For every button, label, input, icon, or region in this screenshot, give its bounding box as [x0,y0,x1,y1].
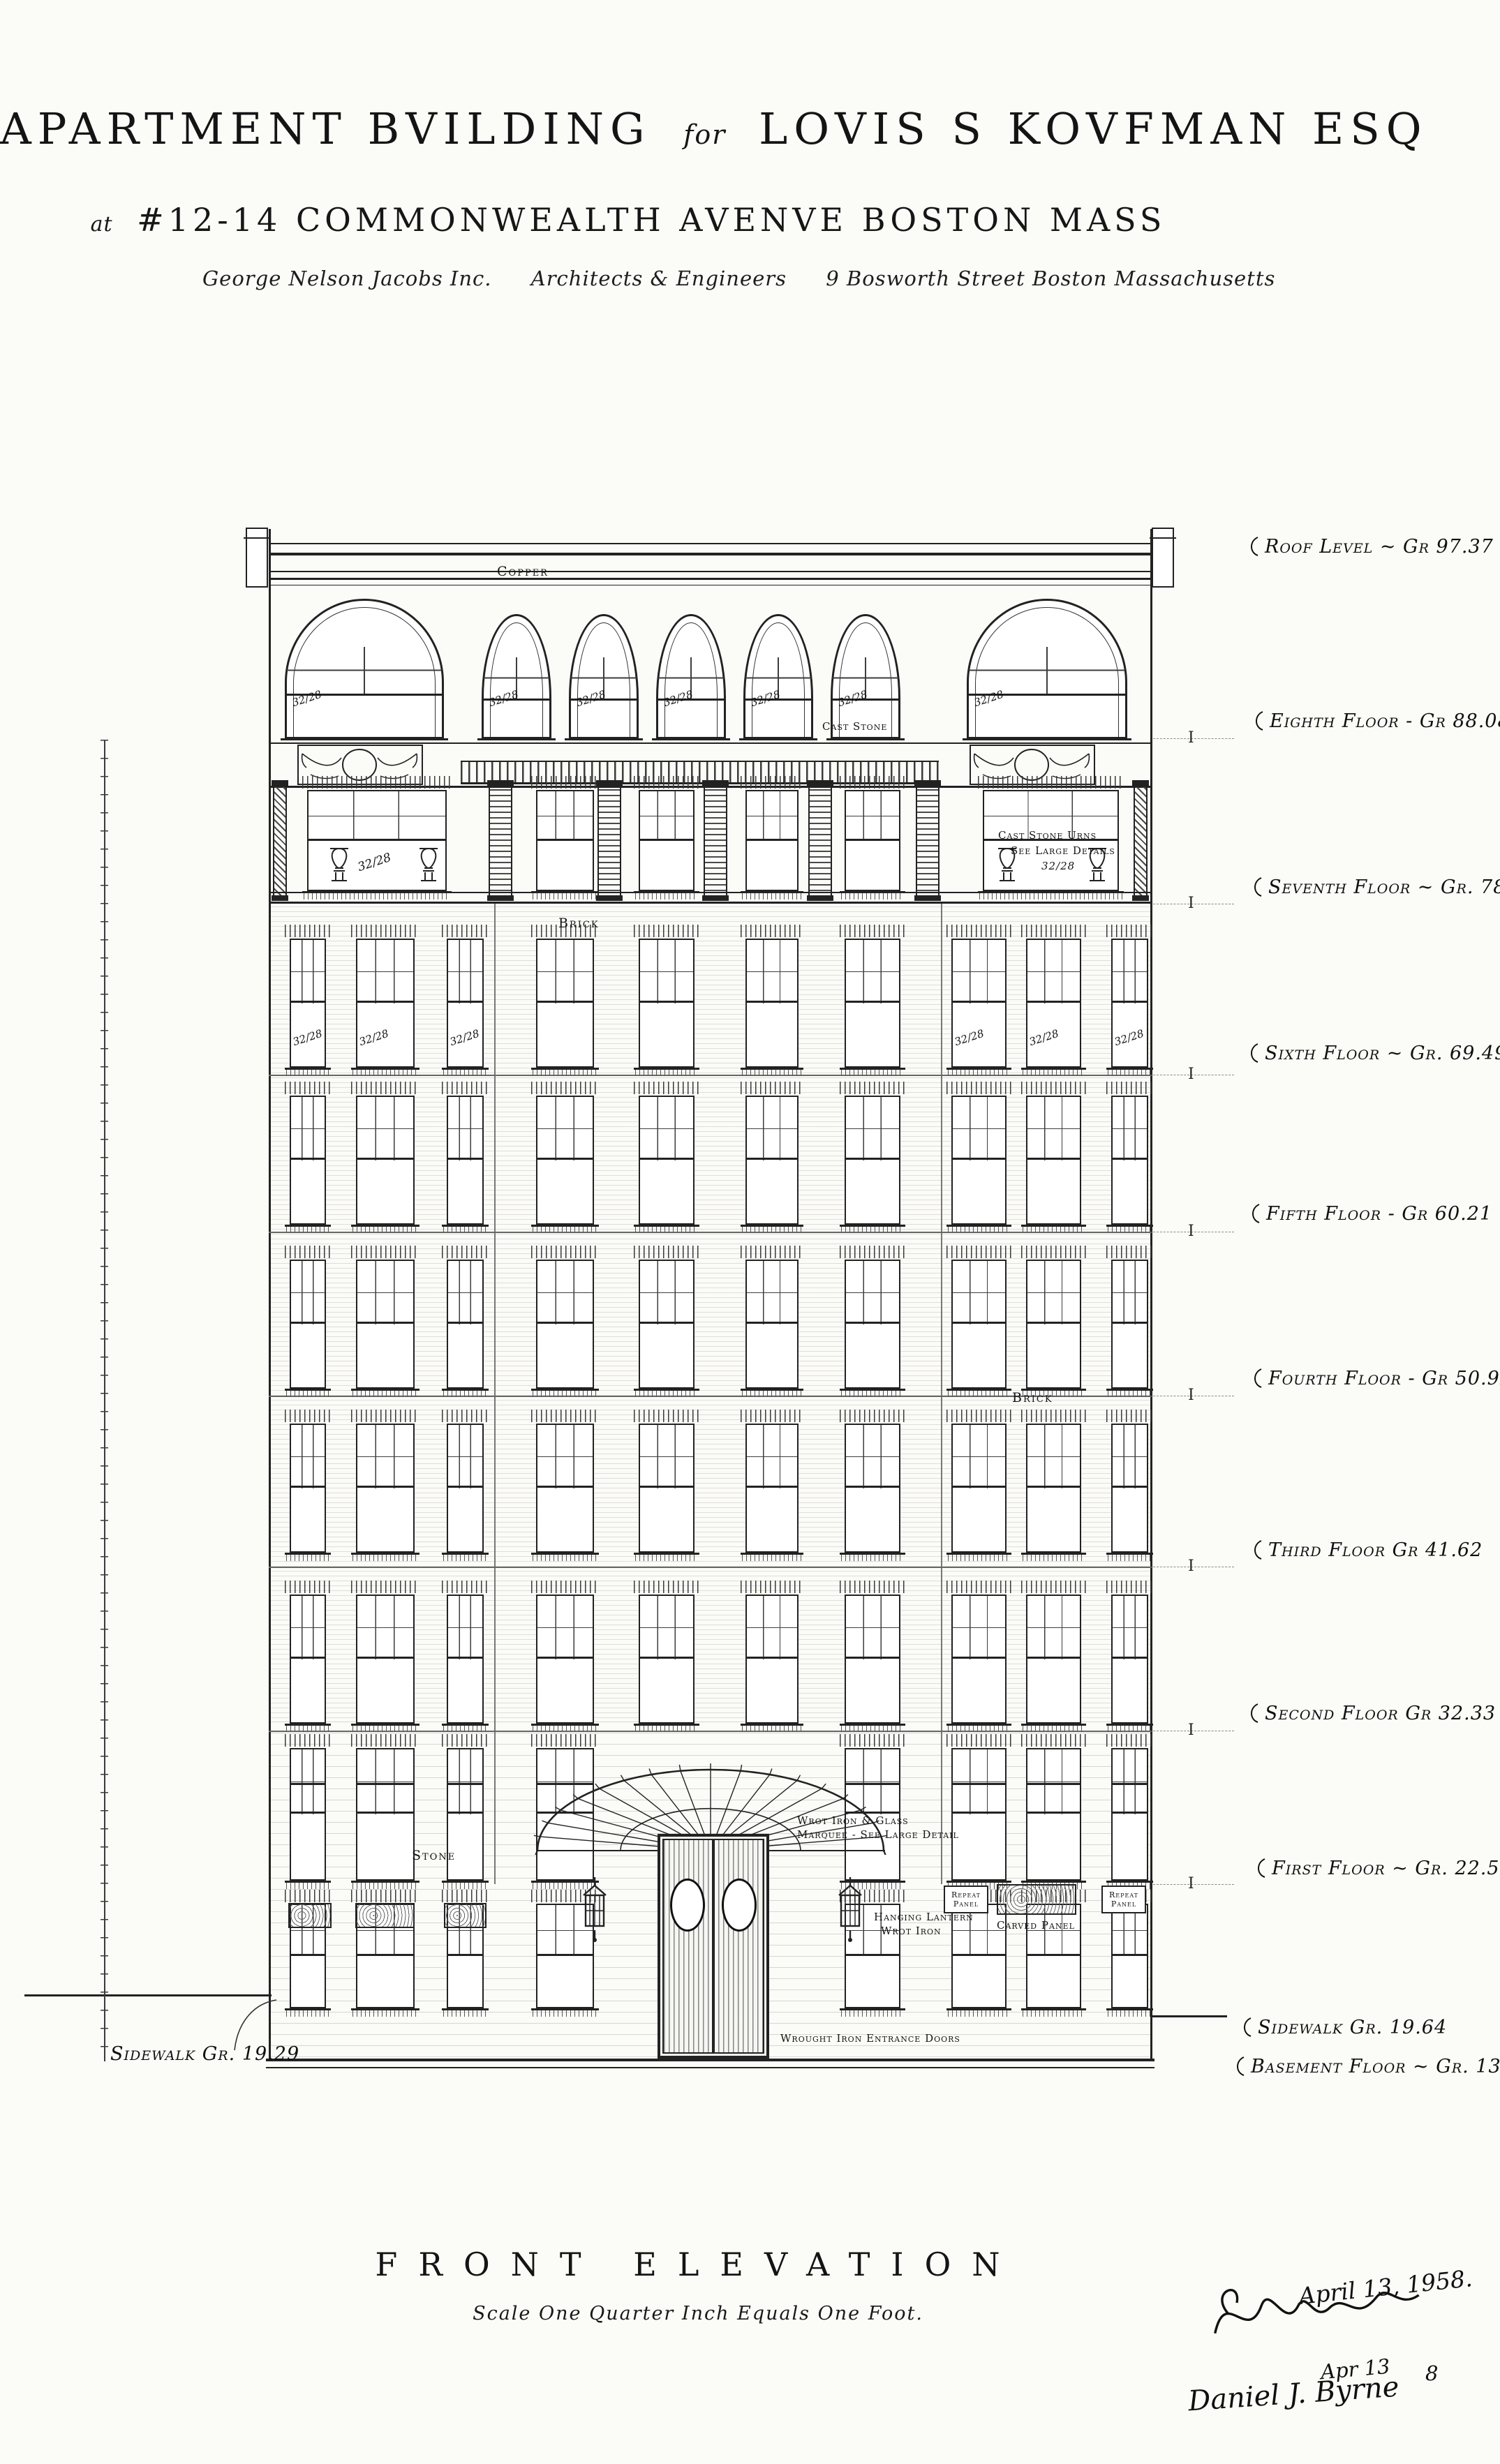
window-meeting-rail [846,1486,899,1488]
window-lintel [442,1890,489,1902]
window-lintel [840,1082,905,1094]
window-transom-bar [1113,1783,1147,1785]
window-meeting-rail [537,1657,593,1659]
window-meeting-rail [291,1954,325,1956]
window-meeting-rail [1113,1657,1147,1659]
window-muntins [953,1097,1005,1160]
window [951,939,1007,1068]
window-lintel [351,1734,419,1747]
window-meeting-rail [357,1322,413,1324]
window-meeting-rail [357,1158,413,1160]
window [536,1595,594,1724]
floor-section-tick: I [1188,1066,1194,1083]
window-muntins [1113,940,1147,1003]
window-meeting-rail [537,1001,593,1003]
floor-level-annotation: Third Floor Gr 41.62 [1252,1539,1483,1561]
window [356,1748,415,1881]
parapet-post-cap [244,537,270,539]
signature-extra-2: 8 [1425,2361,1438,2385]
window-muntins [747,1097,797,1160]
window-sill-hatch [352,1227,418,1233]
floor-level-text: Seventh Floor ~ Gr. 78.79 [1268,876,1500,898]
annotation-leader-curve [1248,1043,1259,1063]
window-meeting-rail [1027,1954,1080,1956]
arched-window-small [569,614,639,738]
window-sill-hatch [533,1391,597,1397]
window [845,1595,900,1724]
window-muntins [357,940,413,1003]
building-base-line-2 [266,2067,1154,2068]
door-leaf [662,1839,715,2054]
window-meeting-rail [448,1812,482,1814]
window-meeting-rail [357,1812,413,1814]
window-meeting-rail [357,1657,413,1659]
cast-stone-urns-label-3: 32/28 [1041,860,1075,872]
window-lintel [741,1246,803,1258]
bay-pier-line [941,904,942,1884]
window [639,1260,695,1389]
window-sill-hatch [352,2010,418,2017]
floor-level-annotation: Fifth Floor - Gr 60.21 [1249,1203,1492,1225]
window [745,790,799,891]
window-sill-hatch [742,1227,802,1233]
window [1026,1595,1081,1724]
floor-string-course [269,1567,1152,1568]
window-lintel [285,1246,331,1258]
window-meeting-rail [953,1158,1005,1160]
window-lintel [285,1734,331,1747]
cast-stone-urn [328,842,350,883]
window-lintel [351,1082,419,1094]
cast-stone-urns-label-1: Cast Stone Urns [998,829,1097,842]
floor-level-text: Third Floor Gr 41.62 [1268,1539,1483,1561]
window-muntins [747,1425,797,1488]
window-transom-bar [953,1783,1005,1785]
window-meeting-rail [1113,1322,1147,1324]
window-meeting-rail [747,1001,797,1003]
carved-panel [997,1884,1076,1915]
window-muntins [640,791,693,841]
floor-level-annotation: Fourth Floor - Gr 50.92 [1252,1368,1500,1389]
window-sill-hatch [841,1391,904,1397]
window [536,790,594,891]
window-meeting-rail [953,1657,1005,1659]
window-sill-hatch [742,1555,802,1561]
window-meeting-rail [640,1001,693,1003]
annotation-leader-curve [1252,1368,1263,1389]
window-meeting-rail [1027,1322,1080,1324]
window-lintel [531,1410,599,1422]
window-sill-hatch [841,1070,904,1076]
window-meeting-rail [640,1158,693,1160]
window-lintel [351,925,419,937]
arched-window-large [967,599,1127,738]
window-meeting-rail [448,1158,482,1160]
window-lintel [285,1082,331,1094]
floor-section-tick: I [1188,1223,1194,1240]
window-lintel [946,1734,1011,1747]
window-lintel [1021,925,1086,937]
window-muntins [846,1425,899,1488]
sidewalk-line-right [1152,2015,1227,2017]
window-lintel [946,1082,1011,1094]
window-muntins [1027,1749,1080,1814]
parapet-post-cap [1150,537,1176,539]
window-lintel [442,1581,489,1593]
window-meeting-rail [953,1486,1005,1488]
window-muntins [537,1097,593,1160]
window-lintel [285,1581,331,1593]
window-lintel [1021,1246,1086,1258]
window [639,1595,695,1724]
elevation-drawing: 32/2832/2832/2832/2832/2832/2832/2832/28… [0,0,1500,2464]
window-meeting-rail [537,1486,593,1488]
floor-section-tick: I [1188,895,1194,912]
window-lintel [1106,1246,1153,1258]
window [1026,1424,1081,1553]
floor7-sill-band-top [269,892,1152,893]
window-sill-hatch [533,2010,597,2017]
window-lintel [741,1410,803,1422]
window-muntins [969,647,1125,693]
window-sill [652,738,730,740]
floor-level-text: Eighth Floor - Gr 88.08 [1270,710,1500,732]
parapet-post [1152,528,1174,588]
floor-level-annotation: Sidewalk Gr. 19.64 [1241,2017,1447,2038]
door-medallion [670,1879,705,1932]
stone-label: Stone [412,1848,456,1863]
window-sill-hatch [352,1883,418,1889]
window-sill-hatch [742,1070,802,1076]
window-meeting-rail [953,1322,1005,1324]
window-lintel [442,1246,489,1258]
window-lintel [978,776,1124,789]
window-muntins [640,940,693,1003]
window-muntins [747,1596,797,1659]
scale-note: Scale One Quarter Inch Equals One Foot. [0,2303,1396,2324]
window-lintel [946,925,1011,937]
hanging-lantern-label-2: Wrot Iron [881,1925,942,1937]
window-meeting-rail [357,1954,413,1956]
window-sill-hatch [533,1555,597,1561]
window [1026,1260,1081,1389]
window-lintel [531,1082,599,1094]
window [1111,1904,1148,2008]
drawing-sheet: APARTMENT BVILDING for LOVIS S KOVFMAN E… [0,0,1500,2464]
window-lintel [946,1410,1011,1422]
floor-section-tick: I [1188,1722,1194,1739]
ornamental-pilaster [808,786,832,897]
window-sill-hatch [635,893,698,899]
copper-label: Copper [497,564,549,579]
window [1026,939,1081,1068]
window-sill-hatch [352,1070,418,1076]
window-muntins [846,1261,899,1324]
annotation-leader-curve [1252,1539,1263,1560]
window-sill-hatch [635,1070,698,1076]
window-lintel [1021,1410,1086,1422]
window [845,1260,900,1389]
window-sill-hatch [443,1555,487,1561]
window-meeting-rail [1027,1812,1080,1814]
window-lintel [840,1410,905,1422]
ornamental-pilaster [916,786,940,897]
window-transom-bar [357,1783,413,1785]
window-sill-hatch [948,1555,1010,1561]
floor-section-tick: I [1188,729,1194,747]
window-sill-hatch [1108,1391,1152,1397]
window-muntins [357,1749,413,1814]
brick-label-lower: Brick [1012,1390,1053,1405]
carved-panel-small [355,1903,415,1928]
window-sill-hatch [948,1391,1010,1397]
window-meeting-rail [537,1322,593,1324]
window-sill-hatch [1108,2010,1152,2017]
window-meeting-rail [846,839,899,841]
window-muntins [953,1596,1005,1659]
window-meeting-rail [537,1954,593,1956]
annotation-leader-curve [1249,1203,1261,1224]
window-muntins [448,1425,482,1488]
cast-stone-label: Cast Stone [822,720,887,733]
window-sill-hatch [443,2010,487,2017]
corner-column [1134,786,1148,897]
facade-right-edge [1150,529,1152,2059]
window-sill-hatch [1023,1227,1085,1233]
window-meeting-rail [846,1322,899,1324]
window-sill-hatch [742,1391,802,1397]
window-lintel [1106,1082,1153,1094]
door-medallion [722,1879,757,1932]
floor-level-annotation: Seventh Floor ~ Gr. 78.79 [1252,876,1500,898]
window-lintel [840,925,905,937]
window-lintel [840,776,905,789]
window-transom-bar [448,1783,482,1785]
floor-level-annotation: Roof Level ~ Gr 97.37 [1248,536,1494,558]
window-meeting-rail [1113,1812,1147,1814]
window-lintel [1106,1410,1153,1422]
sidewalk-line-left [24,1994,272,1996]
floor-level-text: First Floor ~ Gr. 22.50 [1272,1858,1500,1879]
floor-section-tick: I [1188,1387,1194,1404]
window-muntins [291,1749,325,1814]
window-muntins [747,1261,797,1324]
annotation-leader-curve [1252,876,1263,897]
window-lintel [634,776,699,789]
cast-stone-urns-label-2: See Large Details [1011,844,1115,857]
marquee-label-2: Marquee - See Large Detail [797,1828,959,1841]
window [1026,1096,1081,1225]
window-muntins [846,1097,899,1160]
floor-level-annotation: Sixth Floor ~ Gr. 69.49 [1248,1043,1500,1064]
window [1111,1595,1148,1724]
window [536,1424,594,1553]
window [951,1595,1007,1724]
window-meeting-rail [846,1158,899,1160]
entrance-door [658,1834,769,2059]
window [447,939,484,1068]
window-meeting-rail [448,1322,482,1324]
window-muntins [1113,1097,1147,1160]
window [745,1424,799,1553]
arched-window-small [656,614,726,738]
window-lintel [634,1410,699,1422]
window [536,1096,594,1225]
window-muntins [1113,1749,1147,1814]
window-sill-hatch [1023,2010,1085,2017]
window-muntins [537,1425,593,1488]
window-muntins [1027,1425,1080,1488]
window-lintel [351,1890,419,1902]
window-muntins [537,1596,593,1659]
window [1111,1748,1148,1881]
window [356,1260,415,1389]
window-lintel [285,1410,331,1422]
window-lintel [531,776,599,789]
window-lintel [741,776,803,789]
window-lintel [442,1734,489,1747]
window-muntins [357,1261,413,1324]
window-muntins [291,1596,325,1659]
ornamental-pilaster [597,786,621,897]
window [639,1096,695,1225]
window-lintel [1106,925,1153,937]
window [951,1748,1007,1881]
cornice-line [269,585,1152,585]
window-sill-hatch [1023,1555,1085,1561]
window [290,1260,326,1389]
annotation-leader-curve [1248,1703,1259,1724]
window [290,1595,326,1724]
cornice-line [269,571,1152,572]
window [1111,1096,1148,1225]
window [1111,1260,1148,1389]
window-muntins [357,1097,413,1160]
window-meeting-rail [1027,1001,1080,1003]
hanging-lantern [829,1876,871,1946]
window-sill [565,738,643,740]
window-sill [477,738,556,740]
window-muntins [953,1261,1005,1324]
window-sill-hatch [533,893,597,899]
repeat-panel-text: RepeatPanel [945,1887,987,1912]
window-meeting-rail [1113,1158,1147,1160]
window-lintel [442,1410,489,1422]
window-muntins [846,940,899,1003]
window-lintel [840,1246,905,1258]
view-title: FRONT ELEVATION [0,2246,1396,2283]
window-sill-hatch [948,2010,1010,2017]
window-muntins [640,1097,693,1160]
window-lintel [741,1581,803,1593]
window-sill-hatch [1108,1555,1152,1561]
window-sill [826,738,905,740]
repeat-panel: RepeatPanel [1101,1886,1146,1913]
window-muntins [291,940,325,1003]
window-lintel [634,925,699,937]
window-muntins [291,1425,325,1488]
window [447,1260,484,1389]
window-sill-hatch [635,1227,698,1233]
repeat-panel: RepeatPanel [944,1886,988,1913]
window-sill-hatch [841,2010,904,2017]
window-sill-hatch [979,893,1122,899]
window-muntins [953,1749,1005,1814]
brick-label-upper: Brick [558,916,600,931]
window-sill-hatch [1108,1070,1152,1076]
window-lintel [531,1581,599,1593]
window [356,1096,415,1225]
window-meeting-rail [291,1657,325,1659]
arched-window-small [743,614,813,738]
window-sill-hatch [443,1227,487,1233]
cast-stone-urn [417,842,440,883]
window-meeting-rail [448,1954,482,1956]
ornamental-pilaster [704,786,727,897]
window-muntins [448,1261,482,1324]
window-lintel [285,1890,331,1902]
window-muntins [953,1425,1005,1488]
window-muntins [747,791,797,841]
window-sill [963,738,1131,740]
floor-level-text: Fifth Floor - Gr 60.21 [1266,1203,1492,1225]
arched-window-small [482,614,551,738]
window-sill-hatch [841,1726,904,1732]
dimension-line-ticks [101,740,108,2061]
window-sill-hatch [286,1726,329,1732]
window [951,1424,1007,1553]
window-lintel [1106,1734,1153,1747]
floor-level-annotation: Basement Floor ~ Gr. 13.25 [1234,2056,1500,2077]
window-meeting-rail [537,839,593,841]
annotation-leader-curve [1253,710,1264,731]
window-sill-hatch [742,1726,802,1732]
window-sill-hatch [1023,1070,1085,1076]
window [1111,939,1148,1068]
hanging-lantern [574,1876,616,1946]
window-muntins [448,940,482,1003]
window-sill-hatch [948,1726,1010,1732]
arched-window-large [285,599,444,738]
window [745,1096,799,1225]
window-muntins [309,791,445,841]
annotation-leader-curve [1234,2056,1245,2077]
window-lintel [351,1246,419,1258]
window-meeting-rail [953,1954,1005,1956]
window-muntins [537,791,593,841]
window-meeting-rail [291,1812,325,1814]
window [745,939,799,1068]
window [845,1424,900,1553]
window-lintel [840,1734,905,1747]
window-lintel [634,1581,699,1593]
window [290,1424,326,1553]
window-sill-hatch [443,1391,487,1397]
window-sill-hatch [635,1555,698,1561]
window-sill-hatch [286,1391,329,1397]
window-muntins [1027,1097,1080,1160]
window-lintel [442,925,489,937]
window-sill-hatch [443,1070,487,1076]
window-muntins [846,1596,899,1659]
cornice-line [269,543,1152,544]
window [447,1096,484,1225]
window-meeting-rail [1027,1158,1080,1160]
window-meeting-rail [640,1486,693,1488]
annotation-leader-curve [1241,2017,1252,2038]
floor-level-text: Roof Level ~ Gr 97.37 [1265,536,1494,558]
window-sill-hatch [352,1391,418,1397]
